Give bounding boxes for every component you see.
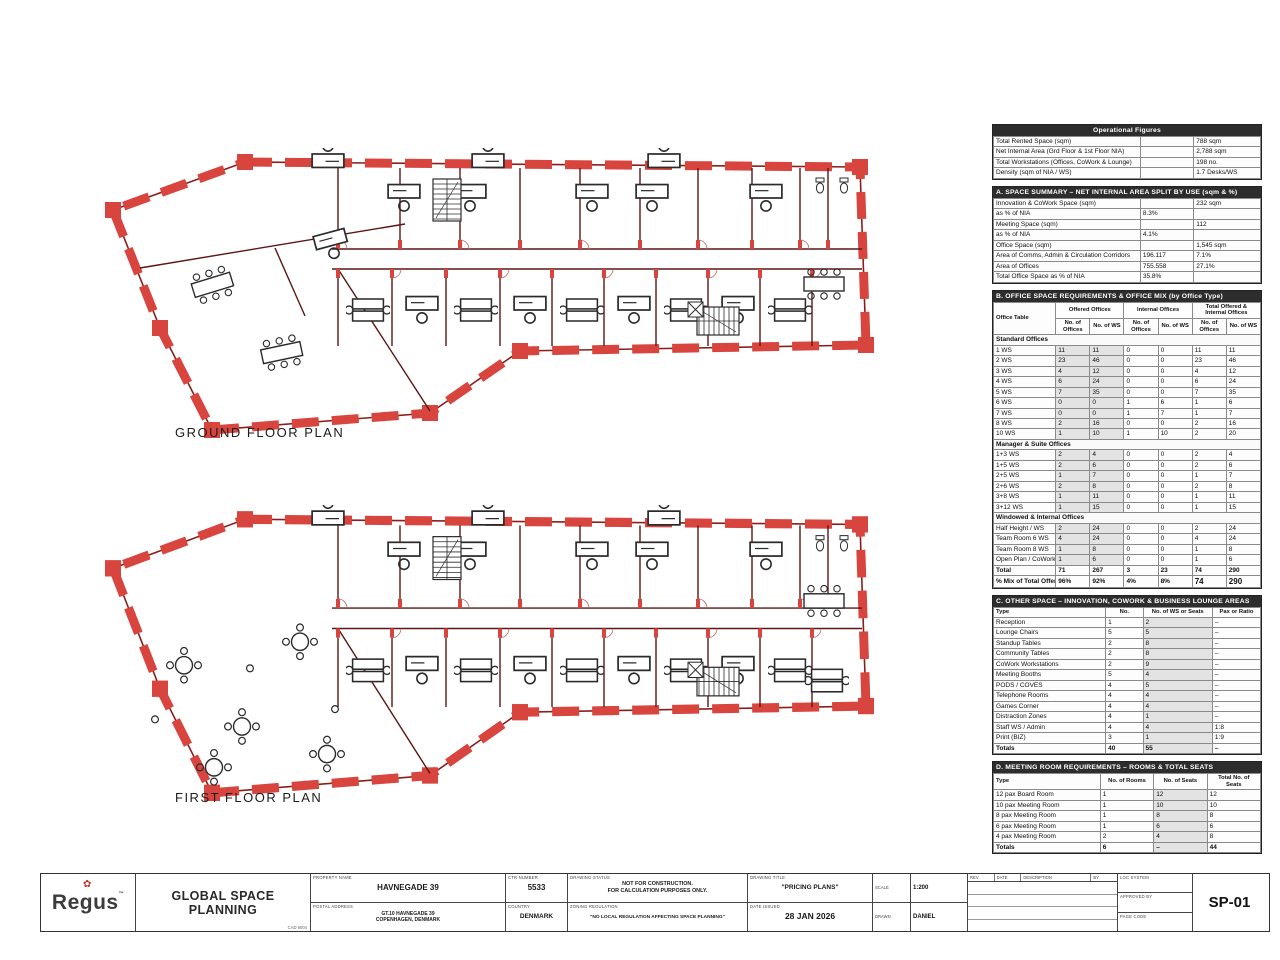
header-row: Office TableOffered OfficesInternal Offi…	[994, 302, 1261, 318]
table-row: Telephone Rooms44–	[994, 691, 1261, 701]
row-value: 4	[1226, 450, 1260, 460]
table-title: Operational Figures	[993, 125, 1261, 136]
row-value: 35.8%	[1140, 272, 1193, 282]
row-value: 0	[1090, 408, 1124, 418]
wall-pier	[858, 698, 874, 714]
row-value: 2	[1056, 450, 1090, 460]
row-value: 5	[1106, 628, 1143, 638]
elevator-symbol	[688, 302, 703, 317]
scale-value: 1:200	[911, 874, 967, 903]
table-row: 10 pax Meeting Room11010	[994, 800, 1261, 810]
table-row: Distraction Zones41–	[994, 712, 1261, 722]
row-label: Half Height / WS	[994, 523, 1056, 533]
row-value	[1194, 272, 1261, 282]
row-label: Meeting Booths	[994, 670, 1106, 680]
table-row: PODS / COVES45–	[994, 680, 1261, 690]
row-value: 0	[1158, 450, 1192, 460]
wall-pier	[858, 337, 874, 353]
row-label: as % of NIA	[994, 230, 1141, 240]
row-value: 2	[1106, 649, 1143, 659]
row-value: 0	[1056, 408, 1090, 418]
table-row: Reception12–	[994, 617, 1261, 627]
row-value: 55	[1143, 743, 1212, 753]
table-row: 8 pax Meeting Room188	[994, 811, 1261, 821]
row-value	[1140, 168, 1193, 178]
row-value: –	[1212, 628, 1260, 638]
row-label: 6 pax Meeting Room	[994, 821, 1101, 831]
row-value: –	[1212, 743, 1260, 753]
table-row: Meeting Space (sqm)112	[994, 219, 1261, 229]
wall-pier	[152, 320, 168, 336]
desk-symbol	[312, 148, 344, 167]
row-value: 10	[1154, 800, 1207, 810]
row-value: 2	[1192, 450, 1226, 460]
row-label: Telephone Rooms	[994, 691, 1106, 701]
row-value: 6	[1226, 460, 1260, 470]
row-value: –	[1212, 712, 1260, 722]
row-label: 2+5 WS	[994, 471, 1056, 481]
row-value: 198 no.	[1194, 157, 1261, 167]
row-value: 755.558	[1140, 261, 1193, 271]
row-value: 24	[1090, 523, 1124, 533]
row-label: 1 WS	[994, 345, 1056, 355]
table: Office TableOffered OfficesInternal Offi…	[993, 302, 1261, 589]
country-label: COUNTRY	[508, 904, 530, 909]
wall-pier	[512, 343, 528, 359]
row-label: 1+5 WS	[994, 460, 1056, 470]
table-row: 3 WS41200412	[994, 366, 1261, 376]
row-label: Totals	[994, 842, 1101, 852]
table-wrap: Operational FiguresTotal Rented Space (s…	[992, 124, 1262, 180]
desk-symbol	[312, 505, 344, 525]
row-label: Total Rented Space (sqm)	[994, 137, 1141, 147]
table-wrap: B. OFFICE SPACE REQUIREMENTS & OFFICE MI…	[992, 290, 1262, 590]
row-value: 0	[1124, 534, 1158, 544]
row-label: 4 pax Meeting Room	[994, 832, 1101, 842]
row-value: 2	[1192, 429, 1226, 439]
row-value: 10	[1207, 800, 1260, 810]
desk-symbol	[472, 505, 504, 525]
sheet-meta: LOC SYSTEM APPROVED BY PAGE CODE	[1118, 874, 1193, 931]
row-label: 2+6 WS	[994, 481, 1056, 491]
row-value: 0	[1158, 523, 1192, 533]
row-value: 0	[1124, 502, 1158, 512]
row-label: 1+3 WS	[994, 450, 1056, 460]
table-row: Print (BIZ)311:9	[994, 733, 1261, 743]
total-row: Totals4055–	[994, 743, 1261, 753]
regus-brand-text: Regus™	[52, 891, 124, 915]
row-value: –	[1212, 659, 1260, 669]
row-value: 8.3%	[1140, 209, 1193, 219]
row-value: 2	[1192, 481, 1226, 491]
row-value: 5	[1143, 628, 1212, 638]
row-value: 12	[1207, 790, 1260, 800]
row-value: 0	[1124, 387, 1158, 397]
table-row: as % of NIA8.3%	[994, 209, 1261, 219]
row-value: 4	[1143, 722, 1212, 732]
table-row: 3+12 WS11500115	[994, 502, 1261, 512]
row-value: 1,545 sqm	[1194, 240, 1261, 250]
row-value: –	[1212, 691, 1260, 701]
row-value: 71	[1056, 565, 1090, 575]
drawing-title-label: DRAWING TITLE	[750, 875, 785, 880]
row-label: Meeting Space (sqm)	[994, 219, 1141, 229]
meeting-rooms-table: D. MEETING ROOM REQUIREMENTS – ROOMS & T…	[992, 761, 1262, 854]
row-value: 1:9	[1212, 733, 1260, 743]
row-value: 0	[1158, 345, 1192, 355]
wall-pier	[512, 704, 528, 720]
row-value: 0	[1124, 555, 1158, 565]
row-value: 0	[1158, 502, 1192, 512]
table-row: 1 WS1111001111	[994, 345, 1261, 355]
first-plan-svg	[100, 505, 880, 801]
row-value: 10	[1090, 429, 1124, 439]
table-row: 4 pax Meeting Room248	[994, 832, 1261, 842]
wall-pier	[105, 202, 121, 218]
row-label: 3 WS	[994, 366, 1056, 376]
table-row: 2 WS2346002346	[994, 356, 1261, 366]
table-row: Area of Comms, Admin & Circulation Corri…	[994, 251, 1261, 261]
row-value: 1	[1100, 821, 1153, 831]
table-row: 10 WS110110220	[994, 429, 1261, 439]
row-value: 1.7 Desks/WS	[1194, 168, 1261, 178]
header-row: TypeNo.No. of WS or SeatsPax or Ratio	[994, 608, 1261, 618]
row-value: 12	[1226, 366, 1260, 376]
row-value: 0	[1158, 460, 1192, 470]
row-value: 20	[1226, 429, 1260, 439]
row-value: 23	[1056, 356, 1090, 366]
row-label: Reception	[994, 617, 1106, 627]
row-value: 0	[1056, 398, 1090, 408]
row-value: 4	[1143, 701, 1212, 711]
table-row: 1+3 WS240024	[994, 450, 1261, 460]
table-row: Open Plan / CoWork160016	[994, 555, 1261, 565]
row-value: –	[1212, 701, 1260, 711]
table-row: 5 WS73500735	[994, 387, 1261, 397]
desk-symbol	[472, 148, 504, 167]
row-value: 0	[1124, 356, 1158, 366]
row-value: 8	[1090, 544, 1124, 554]
wc-symbol	[816, 536, 824, 551]
regus-logo: ✿ Regus™	[41, 874, 136, 931]
row-label: CoWork Workstations	[994, 659, 1106, 669]
row-value: 74	[1192, 576, 1226, 588]
grand-total-row: % Mix of Total Offered & Internal Office…	[994, 576, 1261, 588]
row-label: 6 WS	[994, 398, 1056, 408]
row-value: 1	[1106, 617, 1143, 627]
section-row: Manager & Suite Offices	[994, 439, 1261, 449]
ground-floor-plan-label: GROUND FLOOR PLAN	[175, 425, 344, 440]
row-label: 10 WS	[994, 429, 1056, 439]
row-value: 11	[1090, 492, 1124, 502]
wc-symbol	[840, 536, 848, 551]
table: Total Rented Space (sqm)788 sqmNet Inter…	[993, 136, 1261, 179]
row-value: 6	[1207, 821, 1260, 831]
row-label: Area of Comms, Admin & Circulation Corri…	[994, 251, 1141, 261]
row-value: 1	[1124, 429, 1158, 439]
row-value: 11	[1090, 345, 1124, 355]
row-value: 1	[1192, 502, 1226, 512]
row-value: 7	[1090, 471, 1124, 481]
loc-system-label: LOC SYSTEM	[1120, 875, 1149, 880]
table-row: Meeting Booths54–	[994, 670, 1261, 680]
stair-symbol	[433, 179, 461, 221]
row-value: 1	[1192, 492, 1226, 502]
row-label: Total Workstations (Offices, CoWork & Lo…	[994, 157, 1141, 167]
row-value: 290	[1226, 565, 1260, 575]
row-value: 0	[1158, 534, 1192, 544]
row-value: 6	[1158, 398, 1192, 408]
row-value: 1	[1192, 555, 1226, 565]
row-value: 2	[1056, 523, 1090, 533]
row-label: 3+12 WS	[994, 502, 1056, 512]
row-label: 7 WS	[994, 408, 1056, 418]
table-row: 6 pax Meeting Room166	[994, 821, 1261, 831]
row-value: 4	[1192, 366, 1226, 376]
row-value	[1194, 230, 1261, 240]
rev-col-header: DATE	[995, 874, 1022, 881]
row-value: 0	[1124, 544, 1158, 554]
wc-symbol	[816, 178, 824, 193]
first-floor-plan-label: FIRST FLOOR PLAN	[175, 790, 322, 805]
row-label: 3+8 WS	[994, 492, 1056, 502]
row-value: 15	[1090, 502, 1124, 512]
row-value: 6	[1226, 398, 1260, 408]
row-value: 24	[1090, 534, 1124, 544]
row-value: 6	[1100, 842, 1153, 852]
row-label: Area of Offices	[994, 261, 1141, 271]
table-row: Density (sqm of NIA / WS)1.7 Desks/WS	[994, 168, 1261, 178]
row-value: 0	[1124, 460, 1158, 470]
first-floor-plan	[100, 505, 880, 801]
row-value: 1	[1100, 800, 1153, 810]
row-value: 8	[1143, 649, 1212, 659]
row-value: 15	[1226, 502, 1260, 512]
table: TypeNo.No. of WS or SeatsPax or RatioRec…	[993, 607, 1261, 754]
wall-pier	[237, 511, 253, 527]
row-label: PODS / COVES	[994, 680, 1106, 690]
total-row: Total7126732374290	[994, 565, 1261, 575]
row-value: 8%	[1158, 576, 1192, 588]
wall-pier	[105, 560, 121, 576]
row-label: 8 WS	[994, 419, 1056, 429]
row-value: 8	[1207, 811, 1260, 821]
row-value: 0	[1124, 450, 1158, 460]
row-label: 8 pax Meeting Room	[994, 811, 1101, 821]
row-value: 1	[1056, 502, 1090, 512]
row-value: 2	[1143, 617, 1212, 627]
row-value: 0	[1158, 366, 1192, 376]
row-value: 11	[1056, 345, 1090, 355]
drawing-title-value: "PRICING PLANS"	[781, 884, 838, 891]
desk-symbol	[648, 505, 680, 525]
row-value: 4	[1056, 366, 1090, 376]
row-label: 2 WS	[994, 356, 1056, 366]
row-value: 8	[1154, 811, 1207, 821]
date-issued-value: 28 JAN 2026	[785, 912, 835, 922]
row-label: Team Room 6 WS	[994, 534, 1056, 544]
row-label: % Mix of Total Offered & Internal Office…	[994, 576, 1056, 588]
row-value: 35	[1226, 387, 1260, 397]
row-value: 2	[1192, 523, 1226, 533]
row-value: 4	[1090, 450, 1124, 460]
row-label: 5 WS	[994, 387, 1056, 397]
row-value	[1140, 240, 1193, 250]
row-value	[1140, 157, 1193, 167]
section-row: Standard Offices	[994, 335, 1261, 345]
table-row: Total Rented Space (sqm)788 sqm	[994, 137, 1261, 147]
row-value: 1	[1192, 471, 1226, 481]
table-row: Games Corner44–	[994, 701, 1261, 711]
stair-symbol	[433, 537, 461, 580]
row-value: 4	[1106, 680, 1143, 690]
table-row: 4 WS62400624	[994, 377, 1261, 387]
row-value: 0	[1158, 555, 1192, 565]
regus-leaf-icon: ✿	[83, 880, 91, 890]
row-value: 290	[1226, 576, 1260, 588]
row-value: 24	[1226, 523, 1260, 533]
row-value: 16	[1090, 419, 1124, 429]
total-row: Totals6–44	[994, 842, 1261, 852]
table-row: 2+5 WS170017	[994, 471, 1261, 481]
row-value: 0	[1090, 398, 1124, 408]
row-value: 11	[1192, 345, 1226, 355]
scale-label: SCALE	[873, 874, 911, 903]
row-value: –	[1212, 617, 1260, 627]
row-value: 2	[1100, 832, 1153, 842]
row-label: Density (sqm of NIA / WS)	[994, 168, 1141, 178]
row-value: 1:8	[1212, 722, 1260, 732]
row-value: 23	[1158, 565, 1192, 575]
row-label: as % of NIA	[994, 209, 1141, 219]
row-value: 1	[1100, 790, 1153, 800]
department-subtext: CAD 9004	[288, 925, 307, 930]
table-row: Innovation & CoWork Space (sqm)232 sqm	[994, 198, 1261, 208]
elevator-symbol	[688, 662, 703, 677]
row-value: 8	[1143, 638, 1212, 648]
row-value: 267	[1090, 565, 1124, 575]
row-value: 6	[1154, 821, 1207, 831]
table-row: Total Workstations (Offices, CoWork & Lo…	[994, 157, 1261, 167]
row-value: 232 sqm	[1194, 198, 1261, 208]
row-value: 24	[1226, 377, 1260, 387]
table-row: as % of NIA4.1%	[994, 230, 1261, 240]
centre-number-label: CTR NUMBER	[508, 875, 538, 880]
row-value: 1	[1056, 555, 1090, 565]
row-value: 0	[1124, 471, 1158, 481]
table-row: 8 WS21600216	[994, 419, 1261, 429]
table-row: Standup Tables28–	[994, 638, 1261, 648]
row-value: 5	[1143, 680, 1212, 690]
row-value: 1	[1143, 712, 1212, 722]
row-value: –	[1212, 670, 1260, 680]
rev-col-header: DESCRIPTION	[1021, 874, 1091, 881]
row-value: 4	[1143, 691, 1212, 701]
country-value: DENMARK	[520, 913, 553, 920]
other-space-table: C. OTHER SPACE – INNOVATION, COWORK & BU…	[992, 595, 1262, 755]
row-value: 24	[1226, 534, 1260, 544]
wc-symbol	[840, 178, 848, 193]
row-value: 0	[1124, 345, 1158, 355]
desk-symbol	[648, 148, 680, 167]
row-value: 1	[1143, 733, 1212, 743]
row-value: 196.117	[1140, 251, 1193, 261]
row-value	[1194, 209, 1261, 219]
date-issued-label: DATE ISSUED	[750, 904, 780, 909]
row-value: 788 sqm	[1194, 137, 1261, 147]
row-value: 7	[1226, 408, 1260, 418]
table: TypeNo. of RoomsNo. of SeatsTotal No. of…	[993, 773, 1261, 853]
drawing-status-label: DRAWING STATUS	[570, 875, 610, 880]
row-value: 0	[1124, 481, 1158, 491]
row-label: Totals	[994, 743, 1106, 753]
centre-number-value: 5533	[528, 883, 546, 892]
row-value: 27.1%	[1194, 261, 1261, 271]
row-label: Team Room 8 WS	[994, 544, 1056, 554]
row-label: Innovation & CoWork Space (sqm)	[994, 198, 1141, 208]
row-value: 7	[1226, 471, 1260, 481]
section-row: Windowed & Internal Offices	[994, 513, 1261, 523]
wall-pier	[422, 767, 438, 783]
row-value: 12	[1090, 366, 1124, 376]
row-value: 35	[1090, 387, 1124, 397]
table-row: 6 WS001616	[994, 398, 1261, 408]
row-value: 7.1%	[1194, 251, 1261, 261]
table-row: Total Office Space as % of NIA35.8%	[994, 272, 1261, 282]
department-title: GLOBAL SPACE PLANNING	[136, 889, 310, 917]
row-value: 0	[1158, 387, 1192, 397]
row-value: 1	[1124, 398, 1158, 408]
drawing-sheet: GROUND FLOOR PLAN FIRST FLOOR PLAN Opera…	[0, 0, 1280, 960]
row-value: 4	[1106, 712, 1143, 722]
wall-pier	[422, 405, 438, 421]
table-row: Community Tables28–	[994, 649, 1261, 659]
row-value: 0	[1158, 481, 1192, 491]
row-value: 1	[1100, 811, 1153, 821]
row-value: 2	[1192, 460, 1226, 470]
row-label: Lounge Chairs	[994, 628, 1106, 638]
row-value: 2	[1056, 419, 1090, 429]
row-value: 0	[1158, 492, 1192, 502]
row-value: 8	[1226, 481, 1260, 491]
ground-plan-svg	[100, 148, 880, 438]
table-wrap: A. SPACE SUMMARY – NET INTERNAL AREA SPL…	[992, 186, 1262, 284]
row-value: 3	[1106, 733, 1143, 743]
row-value: 5	[1106, 670, 1143, 680]
row-value: 7	[1158, 408, 1192, 418]
row-value: 6	[1192, 377, 1226, 387]
row-value	[1140, 147, 1193, 157]
office-mix-table: B. OFFICE SPACE REQUIREMENTS & OFFICE MI…	[992, 290, 1262, 590]
wall-pier	[237, 154, 253, 170]
row-value: 112	[1194, 219, 1261, 229]
table-row: CoWork Workstations29–	[994, 659, 1261, 669]
row-value: 0	[1158, 471, 1192, 481]
row-value: 46	[1226, 356, 1260, 366]
wall-pier	[852, 159, 868, 175]
table-row: Team Room 8 WS180018	[994, 544, 1261, 554]
row-value: 6	[1056, 377, 1090, 387]
row-value: 1	[1192, 408, 1226, 418]
row-value: 8	[1207, 832, 1260, 842]
table-wrap: C. OTHER SPACE – INNOVATION, COWORK & BU…	[992, 595, 1262, 755]
row-label: Net Internal Area (Grd Floor & 1st Floor…	[994, 147, 1141, 157]
row-value: 1	[1056, 492, 1090, 502]
row-value: 24	[1090, 377, 1124, 387]
row-value: 6	[1226, 555, 1260, 565]
row-value: 0	[1124, 523, 1158, 533]
row-value	[1140, 137, 1193, 147]
